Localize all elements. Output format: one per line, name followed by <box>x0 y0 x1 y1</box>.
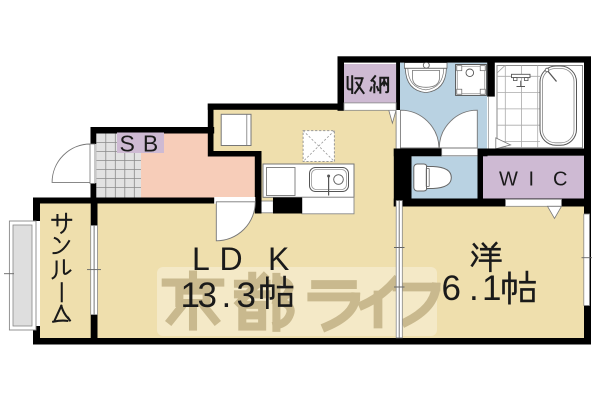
svg-text:D: D <box>220 241 243 277</box>
svg-text:1: 1 <box>482 269 501 308</box>
svg-text:6: 6 <box>442 269 461 308</box>
svg-text:3: 3 <box>198 276 217 315</box>
svg-text:I: I <box>529 169 535 191</box>
svg-text:L: L <box>192 241 210 277</box>
svg-text:.: . <box>469 269 479 308</box>
svg-text:C: C <box>553 169 567 191</box>
svg-text:.: . <box>222 276 232 315</box>
svg-text:W: W <box>499 169 518 191</box>
svg-text:K: K <box>268 241 289 277</box>
svg-text:3: 3 <box>237 276 256 315</box>
svg-text:SB: SB <box>120 130 167 156</box>
